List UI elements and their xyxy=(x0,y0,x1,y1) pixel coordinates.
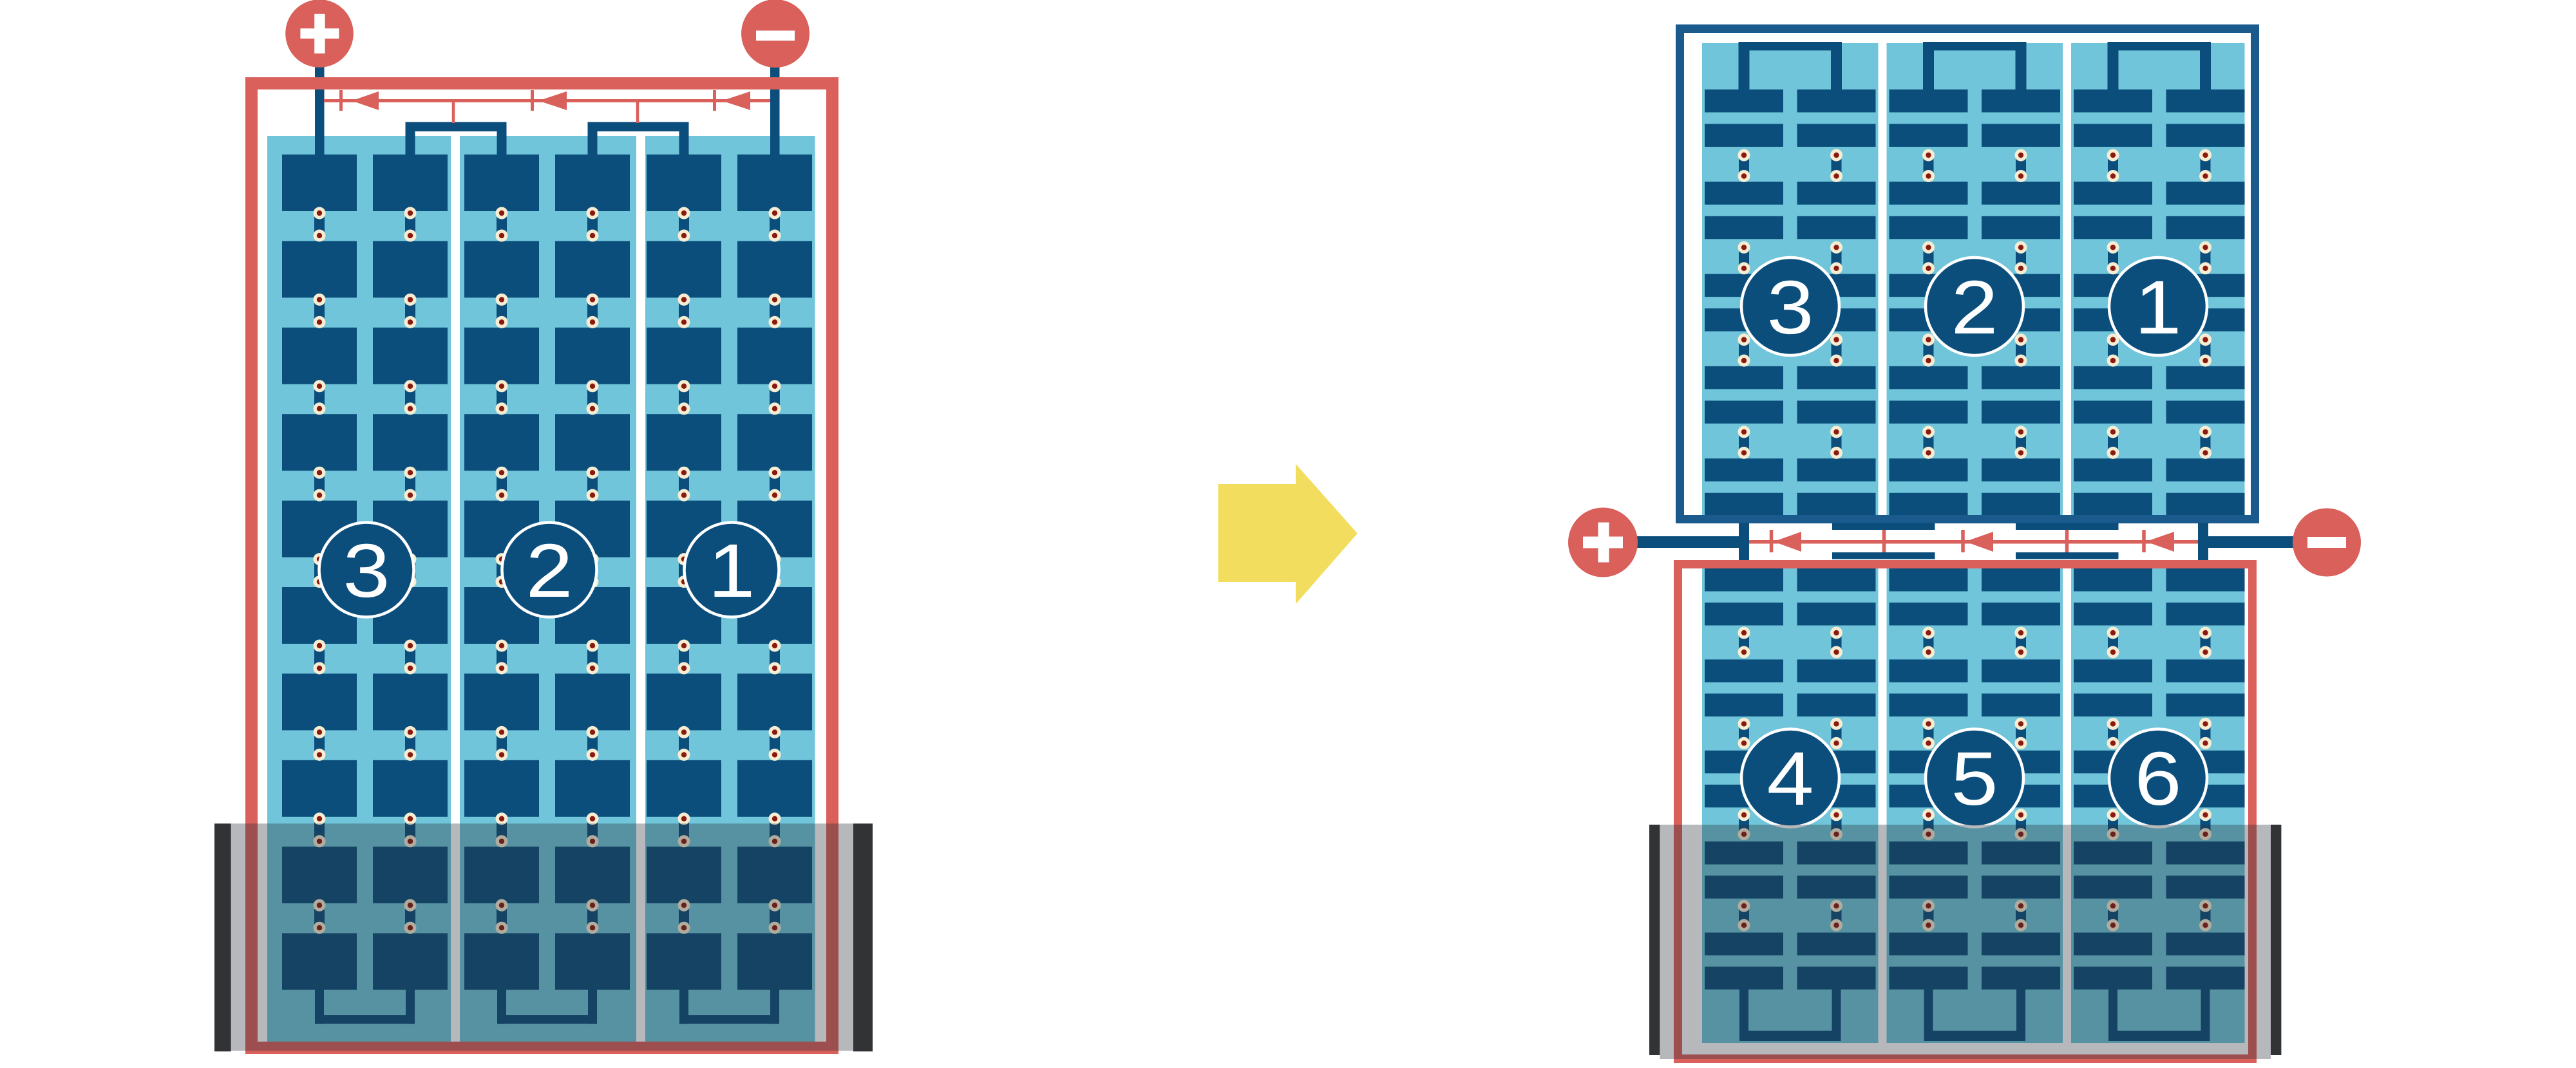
svg-text:4: 4 xyxy=(1767,736,1814,821)
svg-text:5: 5 xyxy=(1951,736,1998,821)
svg-text:2: 2 xyxy=(526,529,573,614)
svg-text:2: 2 xyxy=(1951,265,1998,350)
svg-text:1: 1 xyxy=(2135,265,2182,350)
svg-text:3: 3 xyxy=(343,529,390,614)
svg-text:6: 6 xyxy=(2135,736,2182,821)
svg-text:3: 3 xyxy=(1767,265,1814,350)
svg-text:1: 1 xyxy=(708,529,755,614)
